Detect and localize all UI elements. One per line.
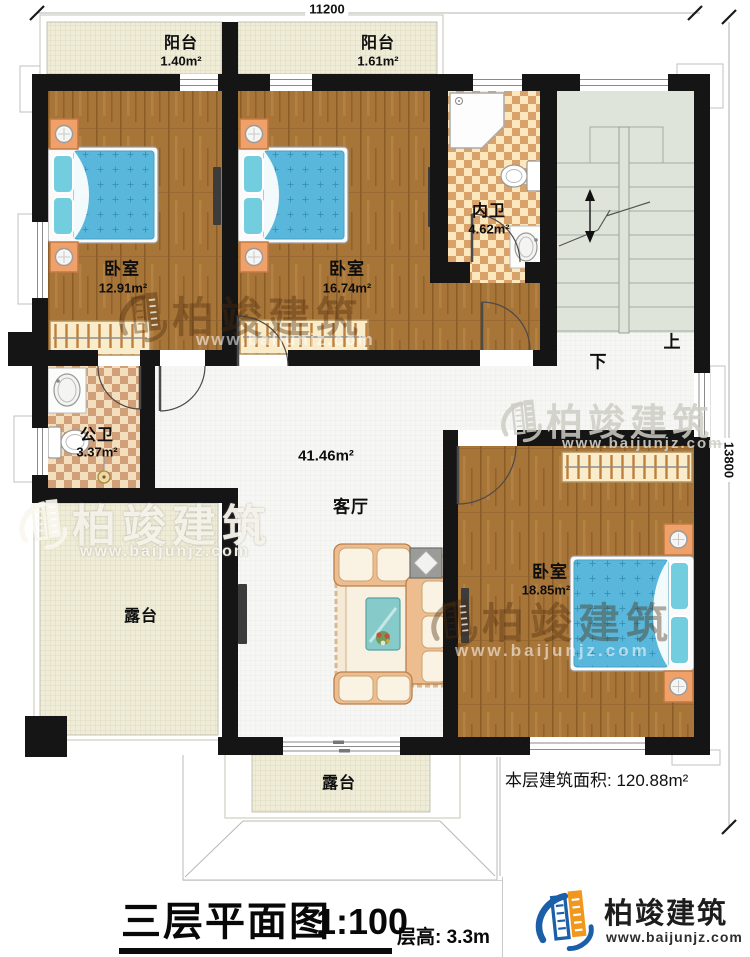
coffee-table [366, 598, 400, 650]
plan-scale: 1:100 [316, 901, 408, 943]
bedroom1-label: 卧室 [104, 261, 140, 278]
footer-divider [183, 880, 503, 881]
public-bath-area: 3.37m² [76, 446, 117, 459]
terrace-bottom-label: 露台 [322, 776, 356, 792]
living-area: 41.46m² [298, 449, 354, 464]
side-table [410, 548, 442, 578]
dimension-top: 11200 [305, 3, 348, 16]
stairs-down-label: 下 [590, 354, 607, 371]
floor-plan-drawing [0, 0, 750, 957]
floor-height: 层高: 3.3m [397, 922, 490, 949]
sofa-set [334, 544, 450, 704]
bedroom2-hall-floor [430, 283, 543, 350]
inner-bath-area: 4.62m² [468, 223, 509, 236]
brand-name: 柏竣建筑 [604, 890, 728, 932]
terrace-left-label: 露台 [124, 609, 158, 625]
bedroom3-area: 18.85m² [522, 584, 570, 597]
title-underline [119, 948, 392, 954]
balcony2-label: 阳台 [361, 36, 395, 52]
sink [510, 226, 541, 268]
window [694, 373, 710, 437]
bedroom2-label: 卧室 [329, 261, 365, 278]
window [530, 737, 645, 755]
window [580, 74, 668, 91]
balcony1-label: 阳台 [164, 36, 198, 52]
column [25, 716, 67, 757]
bedroom1-bed [48, 147, 158, 243]
balcony2-area: 1.61m² [357, 55, 398, 68]
window [473, 74, 522, 91]
living-label: 客厅 [333, 499, 369, 516]
public-bath-label: 公卫 [80, 428, 114, 444]
footer-vertical-divider [502, 877, 503, 957]
plan-title: 三层平面图 [121, 889, 331, 947]
window [32, 222, 48, 298]
column [8, 332, 32, 366]
inner-bath-label: 内卫 [472, 204, 506, 220]
dimension-right: 13800 [723, 438, 736, 482]
bedroom1-area: 12.91m² [99, 282, 147, 295]
bedroom2-bed [238, 147, 348, 243]
sliding-door [283, 737, 400, 755]
stairs-up-label: 上 [664, 334, 681, 351]
bedroom3-bed [570, 556, 694, 671]
brand-logo-icon [534, 883, 600, 953]
balcony1-area: 1.40m² [160, 55, 201, 68]
window [270, 74, 312, 91]
sink [48, 368, 86, 413]
floor-plan-page: 11200 13800 阳台 1.40m² 阳台 1.61m² 卧室 12.91… [0, 0, 750, 957]
hall-floor [155, 366, 694, 430]
window [32, 428, 48, 475]
brand-website: www.baijunjz.com [606, 929, 743, 945]
total-area-note: 本层建筑面积: 120.88m² [505, 766, 688, 791]
bedroom2-area: 16.74m² [323, 282, 371, 295]
bedroom3-label: 卧室 [532, 564, 568, 581]
balcony2-floor [238, 22, 437, 74]
window [180, 74, 218, 91]
